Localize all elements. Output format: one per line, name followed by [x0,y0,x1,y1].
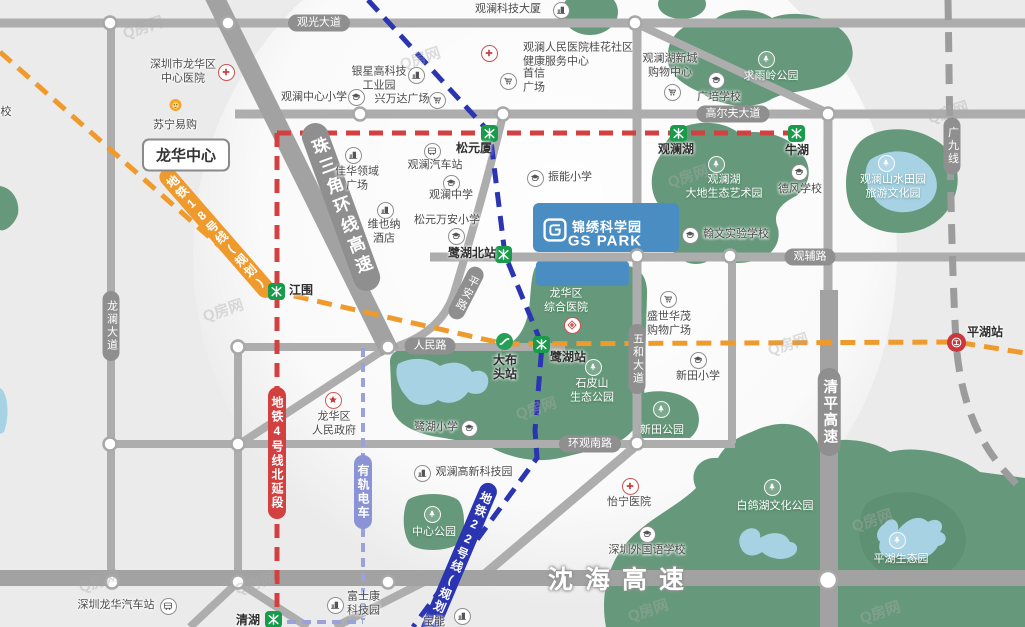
station-label: 牛湖 [785,144,809,158]
poi-label: 观澜山水田园 旅游文化园 [860,173,926,201]
transit-label-地铁22号线(规划): 地铁22号线(规划) [418,480,499,627]
station-icon-清湖 [265,611,282,627]
school-icon [461,420,478,437]
transit-label-地铁4号线北延段: 地铁4号线北延段 [268,387,286,519]
road-label-珠三角环线高速: 珠三角环线高速 [298,119,384,295]
road-label-环观南路: 环观南路 [559,436,621,453]
tree-icon [653,401,670,418]
watermark: Q房网 [513,392,559,425]
school-icon [527,170,544,187]
watermark: Q房网 [200,294,246,327]
building-icon [414,465,431,482]
poi-label: 怡宁医院 [607,496,651,510]
poi-label: 兴万达广场 [375,93,430,107]
partial-label-school: 校 [1,106,12,120]
map[interactable]: Q房网Q房网Q房网Q房网Q房网Q房网Q房网Q房网Q房网Q房网Q房网Q房网观光大道… [0,0,1025,627]
tree-icon [708,156,725,173]
tree-icon [758,51,775,68]
bus-icon [160,598,177,615]
station-icon-平湖站 [947,333,966,352]
poi-label: 富士康 科技园 [347,590,380,618]
station-label: 清湖 [236,614,260,627]
poi-label: 观澜湖新城 购物中心 [643,52,698,80]
watermark: Q房网 [849,504,895,537]
school-icon [708,72,725,89]
road-label-观辅路: 观辅路 [785,249,836,266]
poi-label: 中心公园 [412,526,456,540]
school-icon [791,164,808,181]
watermark: Q房网 [120,11,166,44]
poi-label: 白鸽湖文化公园 [737,500,814,514]
cart-icon [429,92,446,109]
poi-label: 宝能 [423,616,445,627]
road-label-人民路: 人民路 [405,338,456,355]
diamond-icon [564,317,581,334]
cart-icon [500,73,517,90]
map-overlay: Q房网Q房网Q房网Q房网Q房网Q房网Q房网Q房网Q房网Q房网Q房网Q房网观光大道… [0,0,1025,627]
tree-icon [764,479,781,496]
building-icon [345,147,362,164]
lion-icon [167,97,184,114]
transit-label-有轨电车: 有轨电车 [354,455,372,529]
poi-label: 石皮山 生态公园 [570,377,614,405]
poi-label: 德风学校 [778,183,822,197]
tree-icon [424,506,441,523]
poi-label: 龙华区 综合医院 [544,287,588,315]
station-icon-鹭湖站 [533,336,550,353]
watermark: Q房网 [625,594,671,627]
poi-label: 观澜人民医院桂花社区 健康服务中心 [523,41,633,69]
watermark: Q房网 [857,596,903,627]
poi-label: 翰文实验学校 [703,228,769,242]
station-icon-江围 [268,283,285,300]
poi-label: 广培学校 [697,91,741,105]
station-label: 鹭湖站 [550,351,586,365]
poi-label: 松元万安小学 [414,214,480,228]
poi-label: 苏宁易购 [153,119,197,133]
building-icon [553,2,570,19]
transit-label-地铁18号线(规划): 地铁18号线(规划) [156,164,278,301]
building-icon [408,67,425,84]
station-label: 平湖站 [967,326,1003,340]
poi-label: 观澜高新科技园 [436,466,513,480]
station-label: 大布 头站 [493,354,517,382]
station-icon-牛湖 [788,125,805,142]
poi-label: 观澜汽车站 [408,159,463,173]
poi-label: 深圳外国语学校 [609,544,686,558]
cart-icon [660,291,677,308]
cart-icon [664,84,681,101]
poi-label: 新田公园 [640,424,684,438]
area-label-longhua-center: 龙华中心 [142,139,230,172]
tree-icon [585,359,602,376]
watermark: Q房网 [765,328,811,361]
station-label: 鹭湖北站 [448,247,496,261]
station-icon-松元厦 [481,125,498,142]
poi-label: 观澜中心小学 [281,91,347,105]
gs-park-name-en: GS PARK [568,233,642,250]
school-icon [690,352,707,369]
poi-label: 振能小学 [548,171,592,185]
station-icon-鹭湖北站 [495,246,512,263]
star-icon [325,392,342,409]
poi-label: 深圳市龙华区 中心医院 [150,58,216,86]
poi-label: 平湖生态园 [874,553,929,567]
tree-icon [878,155,895,172]
road-label-清平高速: 清平高速 [818,368,841,456]
poi-label: 龙华区 人民政府 [312,410,356,438]
poi-label: 观澜中学 [429,189,473,203]
poi-label: 观澜科技大厦 [475,3,541,17]
poi-label: 深圳龙华汽车站 [78,599,155,613]
poi-label: 观澜湖 大地生态艺术园 [686,173,763,201]
tree-icon [889,532,906,549]
road-label-龙澜大道: 龙澜大道 [103,291,120,361]
poi-label: 银星高科技 工业园 [352,65,407,93]
watermark: Q房网 [232,567,278,600]
poi-label: 首信 广场 [523,67,545,95]
poi-label: 盛世华茂 购物广场 [647,310,691,338]
building-icon [454,608,471,625]
poi-label: 新田小学 [676,370,720,384]
poi-label: 鹭湖小学 [414,421,458,435]
building-icon [327,597,344,614]
station-icon-观澜湖 [670,125,687,142]
watermark: Q房网 [76,565,122,598]
bus-icon [424,143,441,160]
hospital-icon [481,45,498,62]
poi-label: 维也纳 酒店 [368,218,401,246]
station-label: 松元厦 [456,142,492,156]
station-label: 江围 [289,284,313,298]
school-icon [448,228,465,245]
poi-label: 佳华领域 广场 [335,165,379,193]
school-icon [682,227,699,244]
station-label: 观澜湖 [658,143,694,157]
hospital-icon [622,478,639,495]
road-label-广九线: 广九线 [944,118,961,175]
gs-park-logo-icon [542,217,568,243]
road-label-高尔夫大道: 高尔夫大道 [697,106,770,123]
road-label-五和大道: 五和大道 [629,324,646,394]
poi-label: 求雨岭公园 [744,70,799,84]
building-icon [377,202,394,219]
road-label-平安路: 平安路 [445,264,486,323]
road-label-沈海高速: 沈海高速 [548,560,696,596]
station-icon-大布头站 [496,333,513,350]
school-icon [639,526,656,543]
hospital-icon [218,64,235,81]
road-label-观光大道: 观光大道 [288,15,350,32]
